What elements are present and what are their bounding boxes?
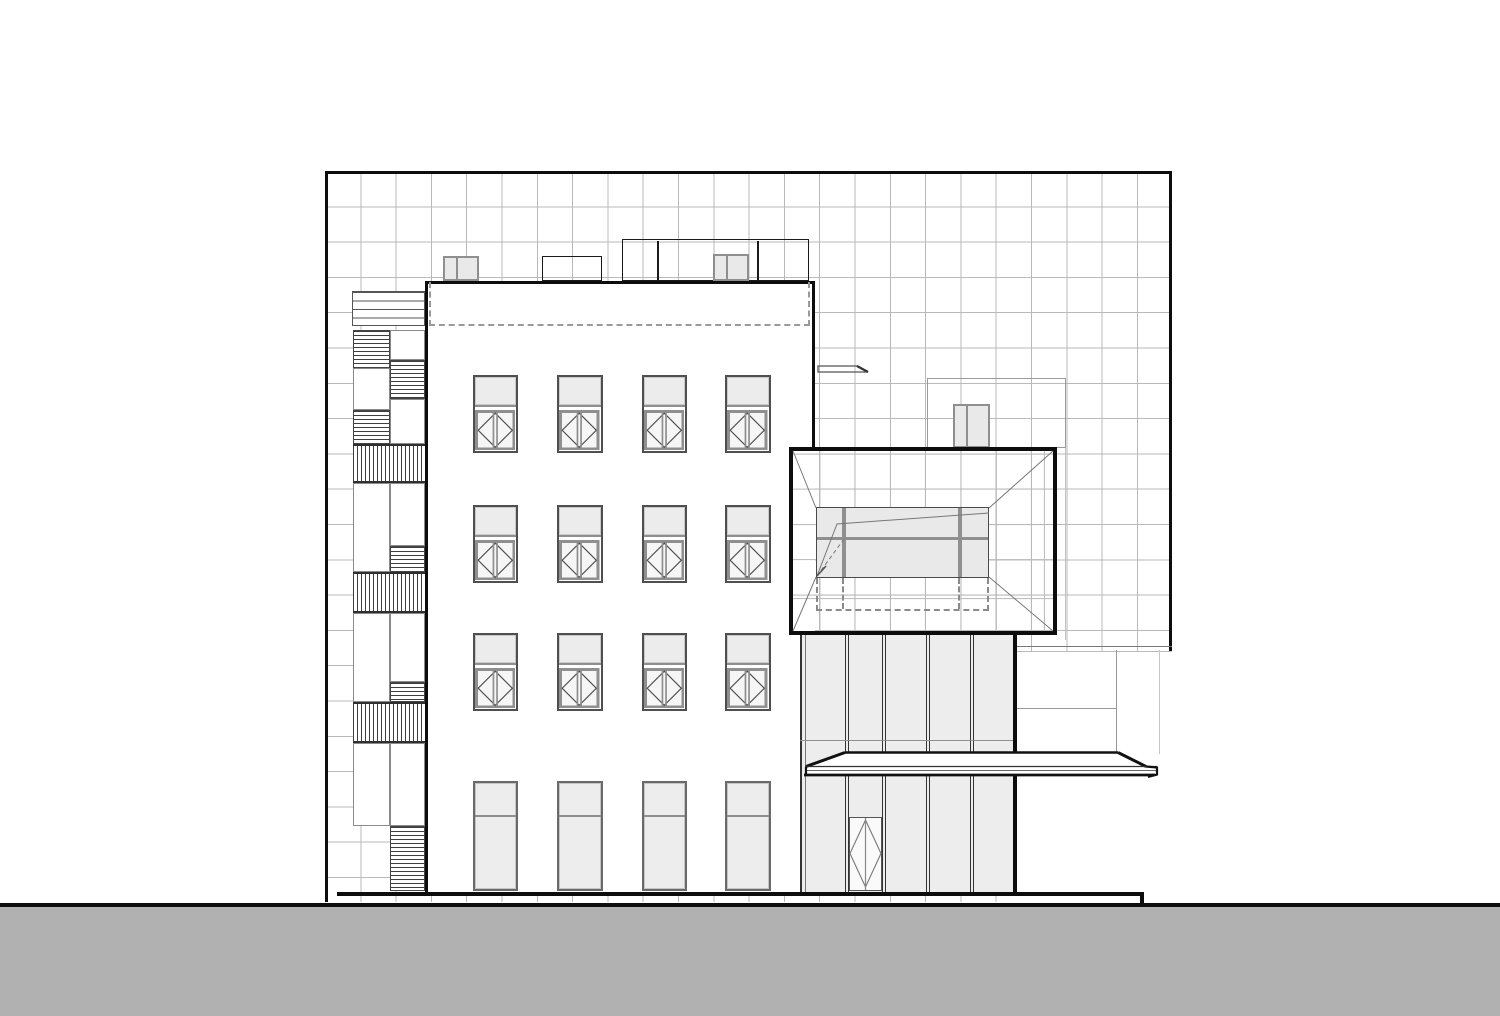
window-sash-diamond bbox=[559, 540, 600, 581]
right-room-fill bbox=[1017, 651, 1172, 905]
window-sash-diamond bbox=[475, 540, 516, 581]
rooftop-box-small bbox=[542, 256, 602, 281]
window-sash-diamond bbox=[727, 410, 768, 451]
chimney-divider bbox=[966, 406, 968, 448]
ground-floor-glazing bbox=[800, 635, 1017, 893]
facade-window bbox=[557, 633, 603, 711]
window-sash-diamond bbox=[644, 668, 685, 709]
rooftop-vent-box-right bbox=[713, 254, 749, 281]
right-room-line bbox=[1159, 650, 1160, 754]
window-spandrel bbox=[644, 635, 686, 665]
tall-window-transom bbox=[644, 815, 686, 817]
glazing-mullion bbox=[882, 635, 886, 893]
window-sash bbox=[475, 668, 517, 710]
left-tower-panel bbox=[390, 613, 425, 682]
facade-window bbox=[473, 375, 519, 453]
picture-window-mullion bbox=[842, 508, 846, 577]
rooftop-vent-box-right-divider bbox=[726, 256, 728, 281]
left-tower-panel bbox=[353, 613, 391, 702]
left-tower-hstair bbox=[390, 682, 426, 702]
window-spandrel bbox=[727, 507, 769, 537]
window-sash-diamond bbox=[475, 668, 516, 709]
window-sash bbox=[559, 668, 601, 710]
window-sash bbox=[644, 668, 686, 710]
left-tower-panel bbox=[390, 399, 425, 444]
window-sash-diamond bbox=[727, 668, 768, 709]
facade-tall-window bbox=[725, 781, 771, 891]
window-sash-diamond bbox=[559, 668, 600, 709]
roof-terrace-outline-tail bbox=[1065, 448, 1066, 640]
window-spandrel bbox=[475, 377, 517, 407]
window-spandrel bbox=[644, 507, 686, 537]
grid-border-left bbox=[325, 171, 328, 902]
window-sash bbox=[727, 540, 769, 582]
window-spandrel bbox=[559, 377, 601, 407]
window-spandrel bbox=[559, 507, 601, 537]
left-tower-vrail bbox=[353, 572, 426, 613]
window-sash bbox=[559, 540, 601, 582]
left-tower-vrail bbox=[353, 444, 426, 483]
window-spandrel bbox=[727, 377, 769, 407]
left-tower-hstair bbox=[353, 410, 391, 444]
window-sash-diamond bbox=[644, 540, 685, 581]
facade-window bbox=[725, 633, 771, 711]
facade-window bbox=[725, 505, 771, 583]
facade-window bbox=[725, 375, 771, 453]
window-sash bbox=[644, 410, 686, 452]
window-sash bbox=[644, 540, 686, 582]
tall-window-transom bbox=[475, 815, 517, 817]
facade-window bbox=[642, 375, 688, 453]
window-spandrel bbox=[727, 635, 769, 665]
facade-window bbox=[642, 633, 688, 711]
glazing-mullion bbox=[970, 635, 974, 893]
chimney bbox=[953, 404, 990, 448]
left-tower-hstair bbox=[353, 330, 391, 368]
left-tower-hstair bbox=[390, 546, 426, 572]
window-sash bbox=[475, 540, 517, 582]
left-tower-panel bbox=[390, 330, 425, 360]
ground-fill bbox=[0, 907, 1500, 1016]
facade-border-right bbox=[812, 281, 815, 451]
left-tower-hstair bbox=[390, 360, 426, 399]
facade-window bbox=[557, 505, 603, 583]
window-sash-diamond bbox=[475, 410, 516, 451]
facade-tall-window bbox=[557, 781, 603, 891]
facade-window bbox=[473, 505, 519, 583]
glazing-mullion bbox=[926, 635, 930, 893]
glazing-transom bbox=[800, 740, 1013, 741]
glazing-left-edge bbox=[805, 635, 806, 893]
facade-border-left bbox=[425, 281, 428, 893]
facade-dashed-parapet bbox=[429, 282, 810, 326]
right-room-line bbox=[1116, 650, 1117, 754]
window-spandrel bbox=[644, 377, 686, 407]
facade-tall-window bbox=[473, 781, 519, 891]
rooftop-penthouse-box-divider bbox=[757, 241, 759, 281]
facade-tall-window bbox=[642, 781, 688, 891]
window-sash bbox=[727, 668, 769, 710]
window-spandrel bbox=[475, 635, 517, 665]
window-sash bbox=[475, 410, 517, 452]
facade-window bbox=[557, 375, 603, 453]
window-spandrel bbox=[559, 635, 601, 665]
right-room-line bbox=[1017, 651, 1172, 652]
left-tower-panel bbox=[353, 743, 391, 826]
left-tower-panel bbox=[353, 483, 391, 572]
rooftop-vent-box-left bbox=[443, 256, 479, 281]
tall-window-transom bbox=[559, 815, 601, 817]
tall-window-transom bbox=[727, 815, 769, 817]
window-sash-diamond bbox=[644, 410, 685, 451]
hidden-balcony-dashed-vert bbox=[842, 578, 844, 609]
roof-terrace-outline bbox=[927, 378, 1066, 448]
window-sash-diamond bbox=[559, 410, 600, 451]
right-room-line bbox=[1017, 708, 1116, 709]
left-tower-vrail bbox=[353, 702, 426, 743]
facade-window bbox=[642, 505, 688, 583]
picture-window-band bbox=[817, 537, 988, 541]
picture-window-mullion bbox=[958, 508, 962, 577]
grid-border-top bbox=[325, 171, 1172, 174]
left-tower-louver bbox=[352, 291, 425, 326]
right-room-line bbox=[1017, 646, 1172, 647]
facade-window bbox=[473, 633, 519, 711]
window-sash bbox=[727, 410, 769, 452]
left-tower-panel bbox=[353, 368, 391, 410]
rooftop-penthouse-box-divider bbox=[657, 241, 659, 281]
rooftop-vent-box-left-divider bbox=[456, 258, 458, 281]
left-tower-panel bbox=[390, 743, 425, 826]
plinth-line bbox=[337, 892, 1143, 896]
left-tower-panel bbox=[390, 483, 425, 546]
entrance-door bbox=[849, 817, 883, 891]
elevation-canvas bbox=[0, 0, 1500, 1016]
window-spandrel bbox=[475, 507, 517, 537]
hidden-balcony-dashed-vert bbox=[958, 578, 960, 609]
window-sash-diamond bbox=[727, 540, 768, 581]
left-tower-hstair bbox=[390, 826, 426, 891]
window-sash bbox=[559, 410, 601, 452]
glazing-left-edge bbox=[800, 635, 802, 893]
